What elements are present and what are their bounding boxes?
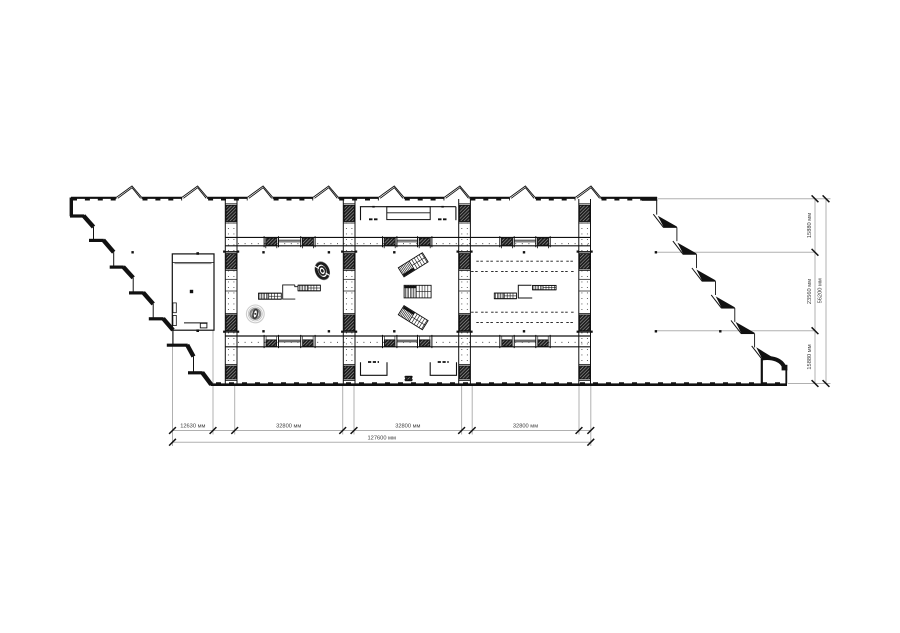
svg-text:23560 мм: 23560 мм: [807, 279, 813, 304]
svg-text:32800 мм: 32800 мм: [276, 424, 301, 430]
svg-text:32800 мм: 32800 мм: [395, 424, 420, 430]
svg-text:56200 мм: 56200 мм: [818, 278, 824, 303]
svg-text:15880 мм: 15880 мм: [807, 213, 813, 238]
svg-text:127600 мм: 127600 мм: [368, 436, 396, 442]
svg-text:15880 мм: 15880 мм: [807, 344, 813, 369]
svg-text:12630 мм: 12630 мм: [180, 424, 205, 430]
svg-text:32800 мм: 32800 мм: [513, 424, 538, 430]
